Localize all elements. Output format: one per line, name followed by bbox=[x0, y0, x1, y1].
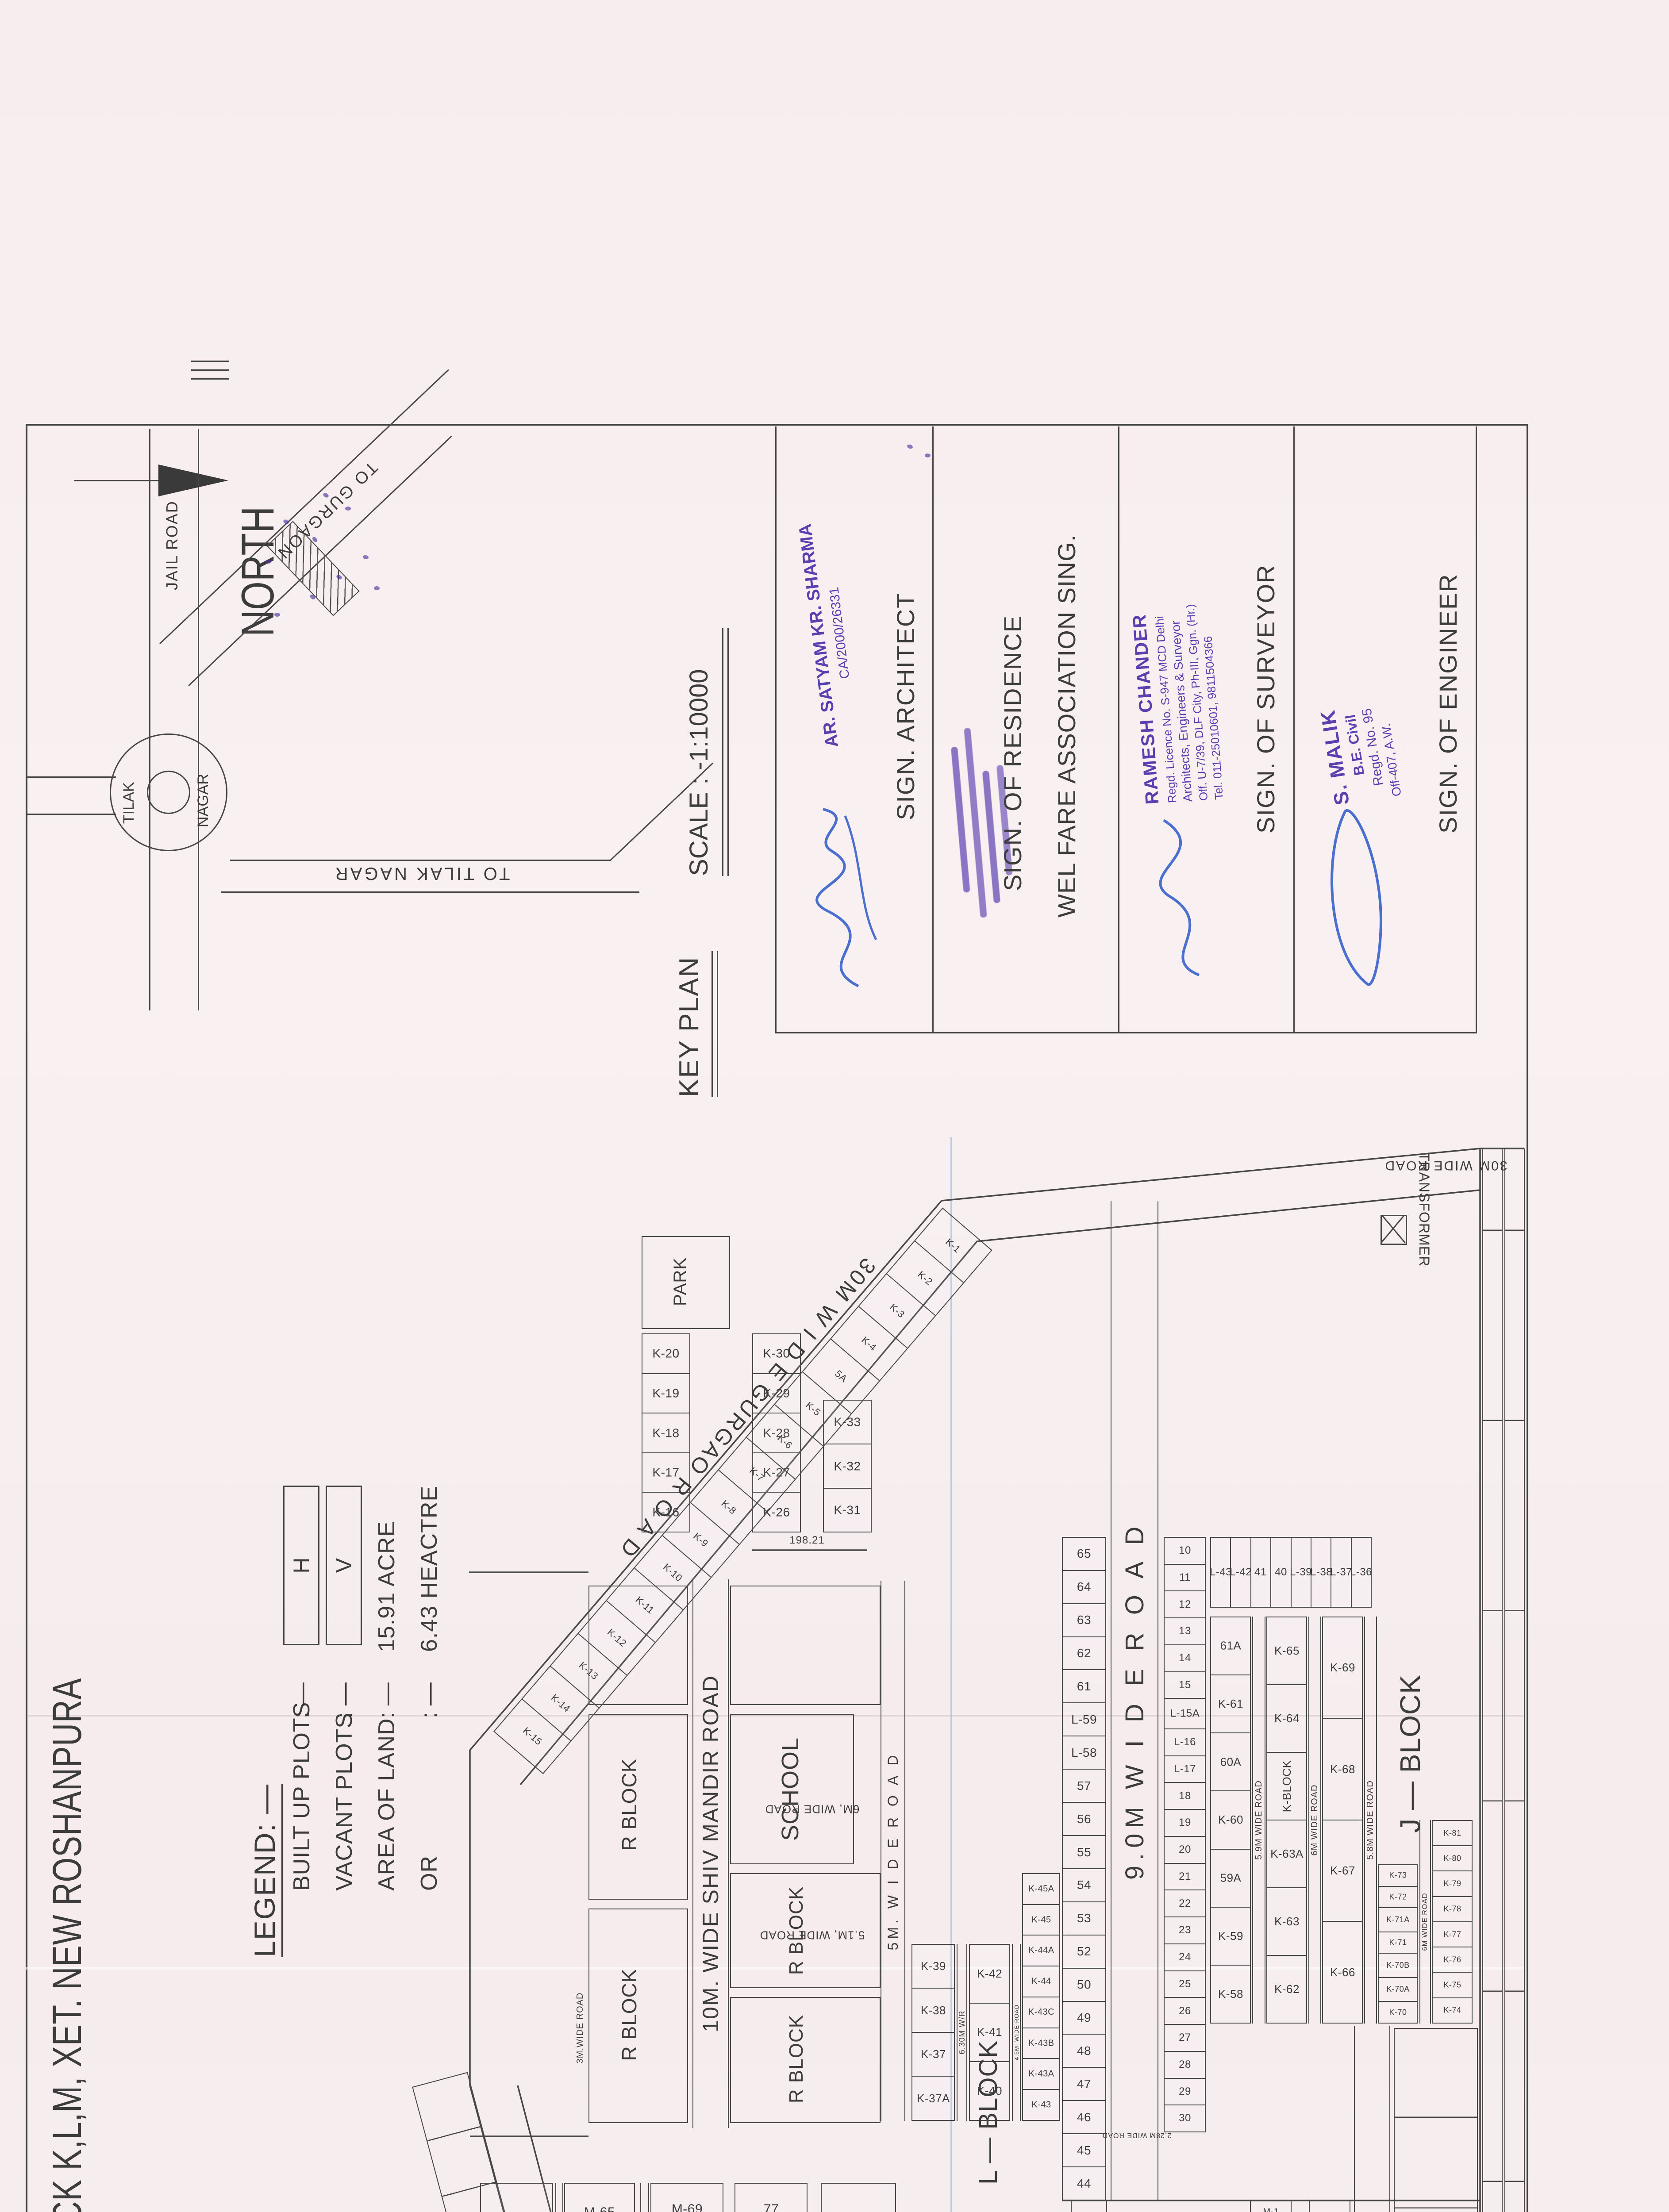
plot-cell: K-43C bbox=[1023, 1997, 1059, 2028]
plan-label: PARK bbox=[670, 1240, 690, 1324]
plot-number: K-45 bbox=[1031, 1915, 1051, 1925]
plot-number: K-42 bbox=[977, 1967, 1002, 1981]
plot-number: 55 bbox=[1077, 1845, 1091, 1859]
plot-cell: 23 bbox=[1165, 1916, 1205, 1943]
plot-cell: K-63A bbox=[1267, 1820, 1306, 1887]
plot-cell: 60A bbox=[1211, 1732, 1250, 1790]
plot-cell: 64 bbox=[1063, 1570, 1105, 1603]
road-label: 6M WIDE ROAD bbox=[1310, 1785, 1320, 1856]
plot-cell: 56 bbox=[1063, 1802, 1105, 1835]
plot-number: K-10 bbox=[661, 1561, 685, 1584]
plot-cell: K-43B bbox=[1023, 2028, 1059, 2058]
plot-number: K-1 bbox=[943, 1236, 963, 1255]
plot-cell: 63 bbox=[1063, 1603, 1105, 1636]
plot-number: K-74 bbox=[1443, 2006, 1461, 2015]
plot-row: 765A5432M-1 bbox=[1250, 2200, 1292, 2212]
road-label: 10M. WIDE SHIV MANDIR ROAD bbox=[698, 1675, 723, 2032]
plot-number: 49 bbox=[1077, 2011, 1091, 2025]
road-label: 5.9M WIDE ROAD bbox=[1254, 1780, 1264, 1860]
plot-number: L-39 bbox=[1290, 1566, 1312, 1578]
plot-cell: K-63 bbox=[1267, 1887, 1306, 1955]
plot-number: 57 bbox=[1077, 1779, 1091, 1793]
plot-number: K-8 bbox=[719, 1498, 738, 1517]
plot-cell: K-76 bbox=[1433, 1947, 1472, 1972]
plot-number: 40 bbox=[1275, 1566, 1287, 1578]
plot-number: K-64 bbox=[1274, 1712, 1300, 1725]
plot-cell: K-43A bbox=[1023, 2058, 1059, 2089]
plot-number: K-BLOCK bbox=[1280, 1760, 1294, 1813]
plan-label: 6M, WIDE ROAD bbox=[746, 1802, 879, 1816]
plot-row: 30292827262524232221201918L-17L-16L-15A1… bbox=[1164, 1537, 1206, 2132]
road-label: 4.5M. WIDE ROAD bbox=[1013, 2005, 1020, 2060]
plot-cell: M-1 bbox=[1251, 2201, 1291, 2212]
plot-number: K-76 bbox=[1443, 1955, 1461, 1964]
plot-cell: K-73 bbox=[1379, 1865, 1417, 1886]
plot-cell: 29 bbox=[1165, 2078, 1205, 2105]
plot-number: K-31 bbox=[834, 1503, 861, 1517]
plot-number: K-63A bbox=[1270, 1847, 1304, 1861]
plot-cell: 52 bbox=[1063, 1935, 1105, 1968]
plot-number: 59A bbox=[1220, 1871, 1241, 1885]
plan-label: R BLOCK bbox=[785, 1999, 808, 2119]
road-band: 2.9M. W bbox=[555, 2183, 563, 2212]
plot-number: K-61 bbox=[1218, 1697, 1243, 1711]
plot-cell: K-44A bbox=[1023, 1935, 1059, 1966]
plot-number: 63 bbox=[1077, 1613, 1091, 1627]
plot-row: 7374A7475A757676A77 bbox=[735, 2183, 808, 2212]
plot-cell: 41 bbox=[1251, 1538, 1271, 1607]
plot-cell: L-16 bbox=[1165, 1728, 1205, 1755]
plot-cell: 61 bbox=[1063, 1670, 1105, 1703]
plot-row: 44454647484950525354555657L-58L-59616263… bbox=[1062, 1537, 1106, 2200]
plot-number: 47 bbox=[1077, 2077, 1091, 2091]
plot-number: K-5 bbox=[803, 1400, 823, 1419]
road-band: 5.8M WIDE ROAD bbox=[1364, 1617, 1377, 2024]
plot-cell: K-37 bbox=[912, 2032, 954, 2076]
ink-dot bbox=[925, 453, 931, 457]
plot-row: K-62K-63K-63AK-BLOCKK-64K-65 bbox=[1266, 1617, 1307, 2024]
plot-number: 64 bbox=[1077, 1580, 1091, 1594]
plot-cell: K-18 bbox=[642, 1413, 689, 1452]
plot-number: 26 bbox=[1179, 2005, 1191, 2017]
plot-number: L-59 bbox=[1071, 1713, 1097, 1727]
road-label: 5.8M WIDE ROAD bbox=[1365, 1780, 1376, 1860]
plot-row: M-72M-71M-71AM-71BM-70AM-70M-69 bbox=[650, 2183, 723, 2212]
plan-label: J — BLOCK bbox=[1394, 1670, 1427, 1838]
plot-number: 25 bbox=[1179, 1978, 1191, 1990]
plot-number: K-19 bbox=[652, 1386, 679, 1400]
plot-cell: 10 bbox=[1165, 1538, 1205, 1564]
plot-cell: 15 bbox=[1165, 1671, 1205, 1698]
plot-cell: 46 bbox=[1063, 2100, 1105, 2133]
plot-number: K-73 bbox=[1389, 1871, 1407, 1880]
plot-row: K-66K-67K-68K-69 bbox=[1322, 1617, 1363, 2024]
plot-cell: K-61 bbox=[1211, 1674, 1250, 1732]
plot-number: K-3 bbox=[887, 1302, 907, 1321]
plot-cell: 14 bbox=[1165, 1644, 1205, 1671]
plot-number: K-43C bbox=[1028, 2007, 1054, 2017]
plot-number: K-62 bbox=[1274, 1982, 1300, 1996]
plot-number: K-45A bbox=[1028, 1884, 1054, 1894]
plot-number: L-16 bbox=[1173, 1736, 1196, 1748]
plot-number: 44 bbox=[1077, 2177, 1091, 2191]
plot-number: K-37 bbox=[921, 2047, 946, 2061]
plot-number: K-2 bbox=[915, 1269, 935, 1288]
plot-cell: 24 bbox=[1165, 1943, 1205, 1970]
plot-cell: 40 bbox=[1271, 1538, 1291, 1607]
plot-number: L-43 bbox=[1210, 1566, 1232, 1578]
plot-number: K-78 bbox=[1443, 1905, 1461, 1914]
plot-cell: 59A bbox=[1211, 1849, 1250, 1907]
plot-number: K-59 bbox=[1218, 1929, 1243, 1943]
plot-cell: K-74 bbox=[1433, 1997, 1472, 2023]
plot-number: 20 bbox=[1179, 1843, 1191, 1856]
plot-number: 21 bbox=[1179, 1870, 1191, 1883]
plot-cell: 30 bbox=[1165, 2104, 1205, 2131]
plot-cell: K-65 bbox=[1267, 1617, 1306, 1684]
plot-row: K-74K-75K-76K-77K-78K-79K-80K-81 bbox=[1432, 1820, 1473, 2024]
plot-number: 77 bbox=[763, 2202, 778, 2212]
plot-cell: K-72 bbox=[1379, 1886, 1417, 1908]
plot-cell: 22 bbox=[1165, 1889, 1205, 1916]
plot-number: K-43B bbox=[1028, 2038, 1054, 2048]
ink-dot bbox=[265, 560, 271, 564]
plot-number: K-14 bbox=[549, 1692, 573, 1715]
plot-cell: L-38 bbox=[1311, 1538, 1331, 1607]
plot-cell: 44 bbox=[1063, 2166, 1105, 2200]
plot-cell: K-39 bbox=[912, 1945, 954, 1988]
ink-dot bbox=[274, 613, 280, 617]
plot-number: K-6 bbox=[775, 1432, 795, 1452]
plot-cell: 87A bbox=[822, 2184, 895, 2212]
plot-row: 83/1B83/2A83/282/383/483/583/6 bbox=[1309, 2200, 1350, 2212]
plot-number: M-65 bbox=[584, 2205, 615, 2212]
plot-number: 5A bbox=[833, 1368, 850, 1385]
plot-number: K-71 bbox=[1389, 1938, 1407, 1947]
plot-number: 41 bbox=[1255, 1566, 1267, 1578]
ink-dot bbox=[374, 586, 380, 590]
plot-number: K-44A bbox=[1028, 1946, 1054, 1956]
plot-number: K-65 bbox=[1274, 1644, 1300, 1658]
plot-cell: 27 bbox=[1165, 2024, 1205, 2051]
road-label: 6M WIDE ROAD bbox=[1421, 1893, 1429, 1951]
plot-number: 48 bbox=[1077, 2044, 1091, 2058]
plot-cell: K-75 bbox=[1433, 1972, 1472, 1997]
plot-number: K-9 bbox=[691, 1530, 711, 1549]
plot-strip-band bbox=[1504, 1148, 1525, 2212]
plot-cell: 20 bbox=[1165, 1836, 1205, 1863]
plot-cell: 77 bbox=[735, 2184, 807, 2212]
plot-cell: L-15A bbox=[1165, 1698, 1205, 1728]
plot-number: 62 bbox=[1077, 1646, 1091, 1660]
plot-number: M-69D bbox=[496, 2210, 537, 2212]
plot-number: K-11 bbox=[633, 1594, 656, 1617]
plot-cell: K-67 bbox=[1323, 1820, 1362, 1921]
plot-row: L-43L-424140L-39L-38L-37L-36 bbox=[1210, 1537, 1372, 1608]
road-label: 6.30M W/R bbox=[958, 2010, 967, 2054]
plot-cell: L-36 bbox=[1352, 1538, 1371, 1607]
plot-cell: K-45 bbox=[1023, 1904, 1059, 1935]
plot-cell: K-44 bbox=[1023, 1966, 1059, 1997]
plot-cell: K-70 bbox=[1379, 2001, 1417, 2023]
road-band: 5.9M WIDE ROAD bbox=[1252, 1617, 1265, 2024]
plot-number: L-37 bbox=[1330, 1566, 1352, 1578]
plan-label: 3M.WIDE ROAD bbox=[575, 1979, 585, 2077]
plot-strip-band bbox=[1482, 1148, 1503, 2212]
plot-number: K-70A bbox=[1386, 1985, 1410, 1994]
ink-dot bbox=[345, 507, 351, 511]
plot-number: 61A bbox=[1220, 1639, 1241, 1653]
plot-number: 29 bbox=[1179, 2085, 1191, 2098]
plot-cell: K-71A bbox=[1379, 1907, 1417, 1932]
road-band: 4.5M. WIDE ROAD bbox=[1012, 1944, 1021, 2121]
plot-cell: K-71 bbox=[1379, 1932, 1417, 1953]
plot-number: K-79 bbox=[1443, 1879, 1461, 1889]
plot-number: K-7 bbox=[747, 1465, 766, 1484]
plot-cell: K-62 bbox=[1267, 1955, 1306, 2023]
plot-number: L-36 bbox=[1350, 1566, 1372, 1578]
plan-block-outline bbox=[730, 1586, 881, 1705]
road-band: 6.30M W/R bbox=[957, 1944, 967, 2121]
plot-cell: 19 bbox=[1165, 1809, 1205, 1836]
plot-number: K-18 bbox=[652, 1426, 679, 1440]
plot-number: 52 bbox=[1077, 1944, 1091, 1959]
plot-cell: M-69D bbox=[481, 2184, 552, 2212]
plot-number: 18 bbox=[1179, 1790, 1191, 1802]
plot-cell: L-58 bbox=[1063, 1736, 1105, 1769]
plot-number: 23 bbox=[1179, 1924, 1191, 1936]
plot-number: L-38 bbox=[1310, 1566, 1332, 1578]
plot-number: L-15A bbox=[1170, 1708, 1200, 1720]
plot-number: L-17 bbox=[1173, 1763, 1196, 1775]
plot-cell: K-80 bbox=[1433, 1845, 1472, 1870]
road-band: 10M WIDE bbox=[1071, 2200, 1107, 2212]
road-band: 9.0M W I D E R O A D bbox=[1111, 1201, 1158, 2200]
plot-cell: 12 bbox=[1165, 1591, 1205, 1618]
plot-number: K-80 bbox=[1443, 1854, 1461, 1863]
transformer-icon bbox=[1381, 1215, 1407, 1245]
plot-cell: 50 bbox=[1063, 1968, 1105, 2001]
plot-cell: K-60 bbox=[1211, 1790, 1250, 1848]
plot-cell: 48 bbox=[1063, 2034, 1105, 2067]
plot-cell: K-70B bbox=[1379, 1953, 1417, 1977]
plot-cell: K-45A bbox=[1023, 1874, 1059, 1904]
plot-number: 45 bbox=[1077, 2143, 1091, 2158]
plot-number: K-4 bbox=[859, 1334, 879, 1353]
plot-cell: K-78 bbox=[1433, 1896, 1472, 1921]
plot-cell: 28 bbox=[1165, 2051, 1205, 2078]
plot-number: 14 bbox=[1179, 1652, 1191, 1664]
plot-number: K-69 bbox=[1330, 1661, 1355, 1674]
plot-cell: 25 bbox=[1165, 1970, 1205, 1997]
scanned-paper-sheet: EXISTING LAY OUT PLAN OF BLOCK K,L,M, XE… bbox=[0, 0, 1669, 2212]
plot-number: K-58 bbox=[1218, 1987, 1243, 2001]
plot-number: 24 bbox=[1179, 1951, 1191, 1963]
plot-number: 56 bbox=[1077, 1812, 1091, 1826]
plot-number: 30 bbox=[1179, 2112, 1191, 2125]
plot-cell: K-20 bbox=[642, 1334, 689, 1373]
plot-number: K-71A bbox=[1386, 1915, 1410, 1924]
plot-cell: K-BLOCK bbox=[1267, 1752, 1306, 1820]
plot-number: 53 bbox=[1077, 1911, 1091, 1925]
plot-number: 60A bbox=[1220, 1755, 1241, 1769]
plot-number: K-66 bbox=[1330, 1966, 1355, 1979]
plot-cell: M-65 bbox=[565, 2184, 634, 2212]
plot-cell: 18 bbox=[1165, 1782, 1205, 1809]
plot-number: 13 bbox=[1179, 1625, 1191, 1638]
plot-cell: K-79 bbox=[1433, 1871, 1472, 1896]
plot-cell: K-68 bbox=[1323, 1718, 1362, 1820]
plot-cell: 49 bbox=[1063, 2001, 1105, 2034]
plot-number: M-69 bbox=[671, 2202, 702, 2212]
plot-cell: K-31 bbox=[824, 1488, 871, 1532]
landscape-drawing: EXISTING LAY OUT PLAN OF BLOCK K,L,M, XE… bbox=[0, 0, 1669, 2212]
plot-number: K-70B bbox=[1386, 1961, 1410, 1970]
plot-number: 46 bbox=[1077, 2110, 1091, 2124]
road-band: 10M. WIDE SHIV MANDIR ROAD bbox=[692, 1579, 729, 2128]
plot-cell: 83/6 bbox=[1310, 2201, 1350, 2212]
plot-number: 50 bbox=[1077, 1978, 1091, 1992]
plot-number: K-32 bbox=[834, 1459, 861, 1473]
plot-cell: K-42 bbox=[970, 1945, 1009, 2003]
road-band: 2.3M. W I D E R O A D bbox=[640, 2183, 649, 2212]
plot-cell: K-81 bbox=[1433, 1821, 1472, 1845]
plot-number: K-67 bbox=[1330, 1864, 1355, 1878]
plot-number: 22 bbox=[1179, 1897, 1191, 1910]
plot-number: K-43A bbox=[1028, 2069, 1054, 2079]
plot-cell: K-38 bbox=[912, 1988, 954, 2032]
plot-number: K-20 bbox=[652, 1347, 679, 1361]
plot-number: K-12 bbox=[605, 1627, 629, 1649]
plot-cell: M-69 bbox=[651, 2184, 723, 2212]
road-label: 5M. W I D E R O A D bbox=[885, 1752, 901, 1951]
plot-cell: L-59 bbox=[1063, 1702, 1105, 1736]
plot-number: K-38 bbox=[921, 2004, 946, 2017]
plot-number: K-39 bbox=[921, 1959, 946, 1973]
plot-number: 54 bbox=[1077, 1878, 1091, 1892]
road-band: 6M WIDE ROAD bbox=[1419, 1820, 1431, 2024]
plot-cell: K-64 bbox=[1267, 1684, 1306, 1752]
plot-number: K-60 bbox=[1218, 1813, 1243, 1827]
plot-cell: K-70A bbox=[1379, 1977, 1417, 2001]
plot-row: K-37AK-37K-38K-39 bbox=[911, 1944, 955, 2121]
plot-number: K-75 bbox=[1443, 1981, 1461, 1990]
plot-strip-band bbox=[1394, 2028, 1478, 2212]
plot-row: M-69M-69BM-69CM-69D bbox=[480, 2183, 553, 2212]
plot-cell: 61A bbox=[1211, 1617, 1250, 1674]
plot-cell: 21 bbox=[1165, 1863, 1205, 1890]
plan-label: 198.21 bbox=[781, 1534, 834, 1547]
plot-row: K-58K-5959AK-6060AK-6161A bbox=[1210, 1617, 1251, 2024]
plot-cell: L-39 bbox=[1292, 1538, 1311, 1607]
plot-number: 11 bbox=[1179, 1571, 1191, 1584]
plot-number: K-72 bbox=[1389, 1892, 1407, 1901]
plot-cell: K-43 bbox=[1023, 2089, 1059, 2120]
plot-cell: K-58 bbox=[1211, 1965, 1250, 2023]
plot-cell: 54 bbox=[1063, 1868, 1105, 1901]
plot-number: K-43 bbox=[1031, 2100, 1051, 2110]
plot-cell: K-37A bbox=[912, 2076, 954, 2120]
plot-cell: K-69 bbox=[1323, 1617, 1362, 1718]
plot-cell: 53 bbox=[1063, 1901, 1105, 1935]
plot-cell: L-17 bbox=[1165, 1755, 1205, 1782]
road-label: 9.0M W I D E R O A D bbox=[1120, 1521, 1150, 1880]
plot-number: K-70 bbox=[1389, 2008, 1407, 2017]
road-band: 10M W I D E R O A D bbox=[1354, 2026, 1390, 2212]
plot-number: K-77 bbox=[1443, 1930, 1461, 1939]
plot-number: 61 bbox=[1077, 1679, 1091, 1694]
plot-number: 15 bbox=[1179, 1679, 1191, 1691]
plot-cell: K-32 bbox=[824, 1444, 871, 1487]
plot-cell: K-77 bbox=[1433, 1921, 1472, 1947]
plot-row: 9392A91908887A bbox=[821, 2183, 896, 2212]
plot-row: M-70M-68M-67M-66M-65 bbox=[564, 2183, 635, 2212]
plot-cell: 47 bbox=[1063, 2067, 1105, 2100]
road-band: 6M WIDE ROAD bbox=[1308, 1617, 1321, 2024]
plan-label: 30M WIDE ROAD bbox=[1379, 1158, 1512, 1173]
plot-number: L-42 bbox=[1230, 1566, 1252, 1578]
plot-number: K-13 bbox=[577, 1659, 600, 1682]
plot-number: 10 bbox=[1179, 1544, 1191, 1557]
plan-label: R BLOCK bbox=[617, 1738, 641, 1871]
plot-number: 28 bbox=[1179, 2058, 1191, 2071]
plot-number: K-15 bbox=[521, 1725, 545, 1747]
plot-cell: L-42 bbox=[1231, 1538, 1251, 1607]
plot-number: 65 bbox=[1077, 1547, 1091, 1561]
plan-label: R BLOCK bbox=[617, 1935, 641, 2094]
plot-cell: 55 bbox=[1063, 1835, 1105, 1868]
plot-cell: K-59 bbox=[1211, 1907, 1250, 1965]
plot-cell: 65 bbox=[1063, 1538, 1105, 1570]
plot-cell: K-66 bbox=[1323, 1921, 1362, 2023]
plot-number: L-58 bbox=[1071, 1746, 1097, 1760]
plot-cell: 13 bbox=[1165, 1617, 1205, 1644]
plan-label: SCHOOL bbox=[777, 1723, 804, 1855]
plot-row: K-70K-70AK-70BK-71K-71AK-72K-73 bbox=[1378, 1864, 1418, 2024]
plot-number: K-37A bbox=[917, 2092, 950, 2105]
plot-number: K-44 bbox=[1031, 1977, 1051, 1987]
plan-label: 2.28M WIDE ROAD bbox=[1084, 2131, 1190, 2139]
plot-row: K-43K-43AK-43BK-43CK-44K-44AK-45K-45A bbox=[1022, 1873, 1060, 2121]
plot-cell: 26 bbox=[1165, 1997, 1205, 2024]
plan-label: 5.1M, WIDE ROAD bbox=[746, 1928, 879, 1942]
plot-cell: 57 bbox=[1063, 1769, 1105, 1802]
plot-cell: K-19 bbox=[642, 1373, 689, 1413]
plot-cell: 11 bbox=[1165, 1564, 1205, 1591]
plot-cell: L-43 bbox=[1211, 1538, 1231, 1607]
road-band: 5M. W I D E R O A D bbox=[881, 1581, 905, 2121]
plot-cell: 62 bbox=[1063, 1636, 1105, 1670]
plot-number: 27 bbox=[1179, 2032, 1191, 2044]
plot-number: 19 bbox=[1179, 1817, 1191, 1829]
plot-number: K-68 bbox=[1330, 1763, 1355, 1776]
plan-label: L — BLOCK bbox=[973, 2017, 1003, 2208]
plot-number: K-63 bbox=[1274, 1915, 1300, 1928]
plot-number: K-81 bbox=[1443, 1828, 1461, 1838]
plot-number: M-1 bbox=[1263, 2207, 1279, 2212]
plan-label: TRANSFORMER bbox=[1416, 1143, 1432, 1276]
plot-cell: L-37 bbox=[1331, 1538, 1351, 1607]
plot-number: 12 bbox=[1179, 1598, 1191, 1611]
